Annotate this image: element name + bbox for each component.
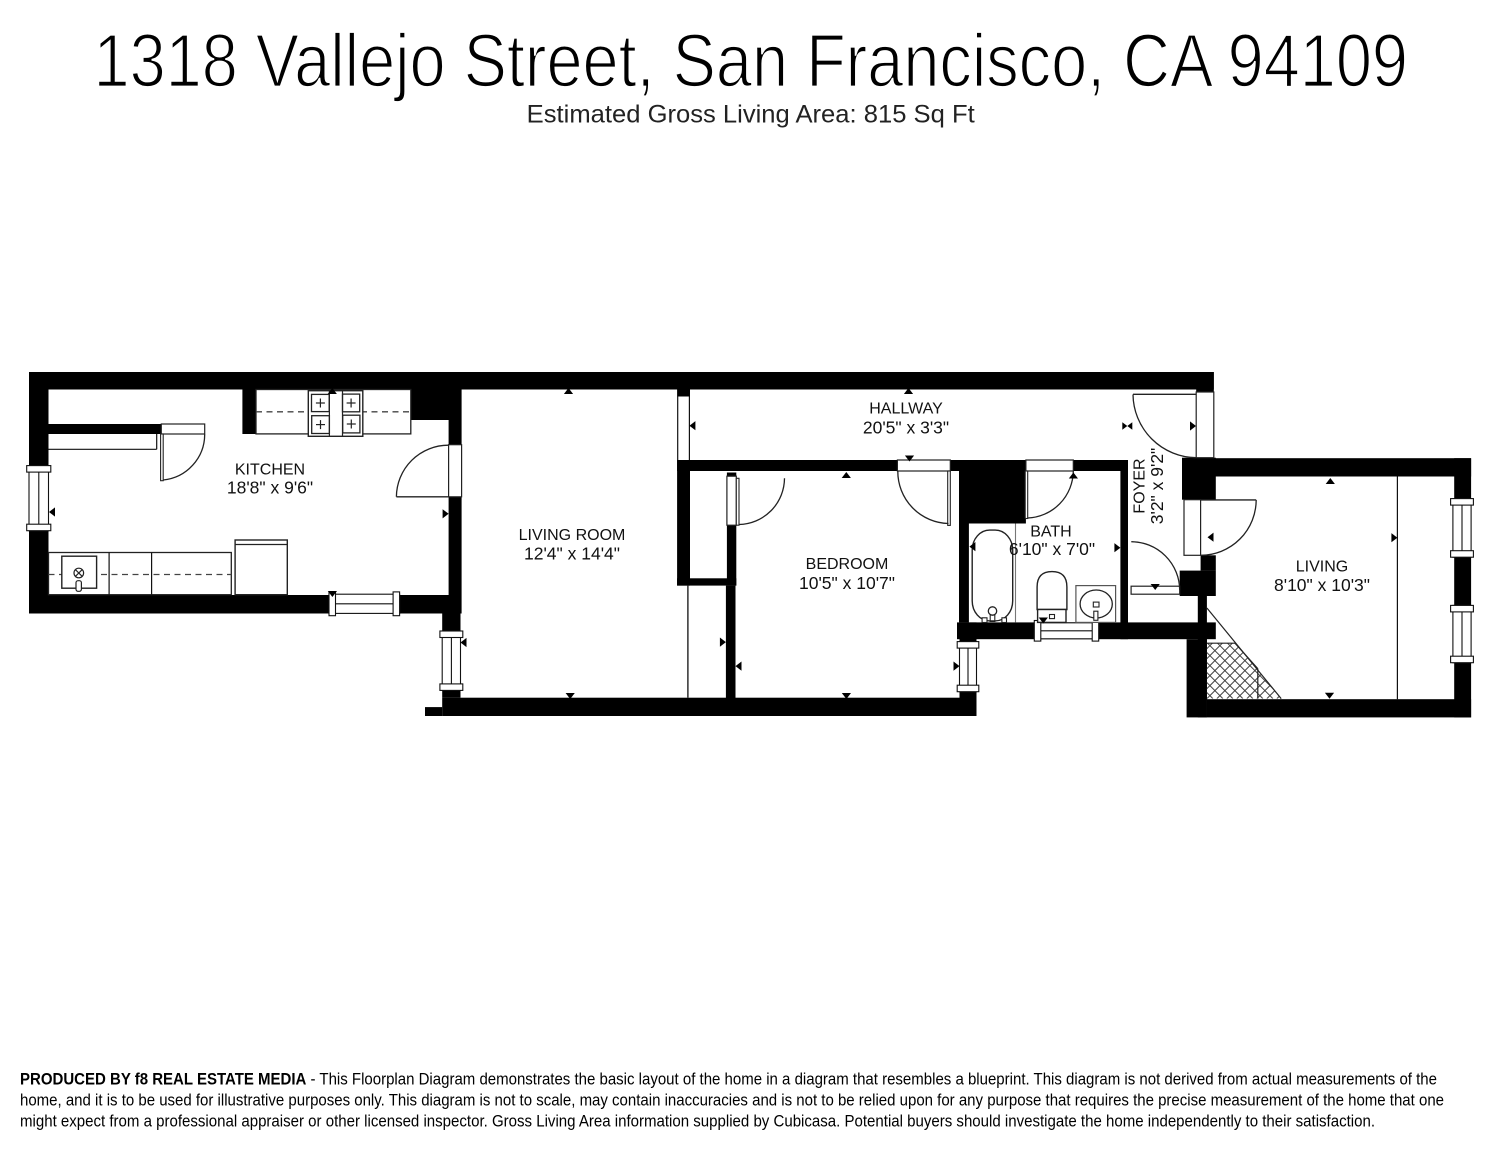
svg-text:BATH: BATH xyxy=(1030,524,1071,541)
svg-text:Estimated Gross Living Area: 8: Estimated Gross Living Area: 815 Sq Ft xyxy=(527,102,975,129)
svg-text:10'5" x 10'7": 10'5" x 10'7" xyxy=(799,573,895,593)
svg-text:HALLWAY: HALLWAY xyxy=(869,401,943,418)
svg-text:3'2" x 9'2": 3'2" x 9'2" xyxy=(1147,448,1167,525)
svg-text:12'4" x 14'4": 12'4" x 14'4" xyxy=(524,544,620,564)
svg-text:8'10" x 10'3": 8'10" x 10'3" xyxy=(1274,575,1370,595)
svg-text:LIVING: LIVING xyxy=(1296,559,1348,576)
svg-text:18'8" x 9'6": 18'8" x 9'6" xyxy=(227,477,313,497)
svg-text:LIVING ROOM: LIVING ROOM xyxy=(519,527,626,544)
svg-text:FOYER: FOYER xyxy=(1131,458,1148,513)
svg-text:KITCHEN: KITCHEN xyxy=(235,462,305,479)
svg-text:home, and it is to be used for: home, and it is to be used for illustrat… xyxy=(20,1091,1444,1110)
svg-text:1318 Vallejo Street, San Franc: 1318 Vallejo Street, San Francisco, CA 9… xyxy=(94,19,1409,103)
svg-text:6'10" x 7'0": 6'10" x 7'0" xyxy=(1009,539,1095,559)
svg-text:might expect from a profession: might expect from a professional apprais… xyxy=(20,1112,1375,1131)
svg-text:20'5" x 3'3": 20'5" x 3'3" xyxy=(863,418,949,438)
svg-text:PRODUCED BY f8 REAL ESTATE MED: PRODUCED BY f8 REAL ESTATE MEDIA - This … xyxy=(20,1070,1437,1089)
svg-text:BEDROOM: BEDROOM xyxy=(806,556,889,573)
